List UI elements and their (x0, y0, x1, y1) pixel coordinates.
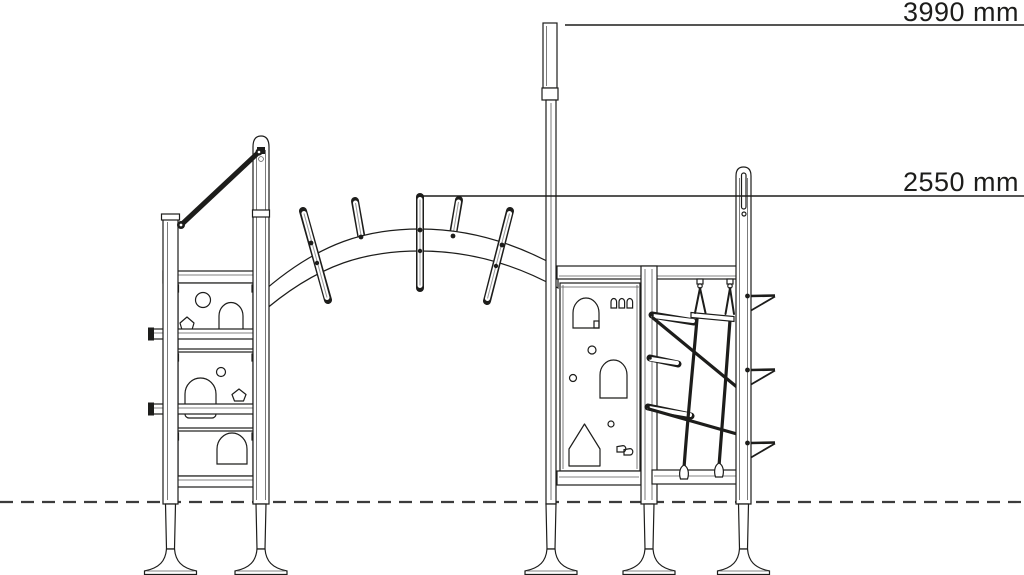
arch-rung-climber (258, 197, 558, 316)
arch-band (258, 229, 558, 316)
net-hanger (695, 279, 706, 313)
ground-anchor-foot (145, 504, 197, 575)
playground-elevation-drawing: 3990 mm 2550 mm (0, 0, 1024, 575)
left-climbing-tower (145, 136, 288, 575)
play-panel (174, 431, 258, 476)
ground-anchor-foot (623, 504, 675, 575)
rail-end-cap (148, 328, 154, 341)
diagonal-grab-bar (177, 148, 263, 229)
net-hanger (726, 279, 735, 314)
dimension-2550: 2550 mm (420, 167, 1024, 197)
net-bottom-rail (652, 470, 738, 484)
tower-short-post (162, 214, 180, 504)
net-rope (684, 319, 697, 468)
dimension-annotations: 3990 mm 2550 mm (420, 0, 1024, 197)
rope-anchor (680, 461, 689, 479)
panel-bottom-rail (557, 471, 641, 485)
tower-bottom-rail (165, 476, 257, 487)
ground-anchor-foot (718, 504, 770, 575)
rope-anchor (715, 459, 724, 477)
elevation-drawing-canvas: 3990 mm 2550 mm (0, 0, 1024, 575)
ground-anchor-foot (525, 504, 577, 575)
ground-anchor-foot (235, 504, 287, 575)
dimension-label-2550: 2550 mm (903, 167, 1019, 197)
tower-tall-post (253, 136, 270, 504)
climber-rung (355, 201, 362, 240)
dimension-3990: 3990 mm (565, 0, 1024, 27)
net-frame-post (641, 266, 657, 504)
center-play-tower (557, 283, 641, 485)
rope-climbing-net (623, 266, 749, 575)
rail-end-cap (148, 403, 154, 416)
dimension-label-3990: 3990 mm (903, 0, 1019, 27)
net-rope (653, 318, 749, 397)
play-panel (174, 352, 258, 428)
net-rope (719, 320, 730, 466)
